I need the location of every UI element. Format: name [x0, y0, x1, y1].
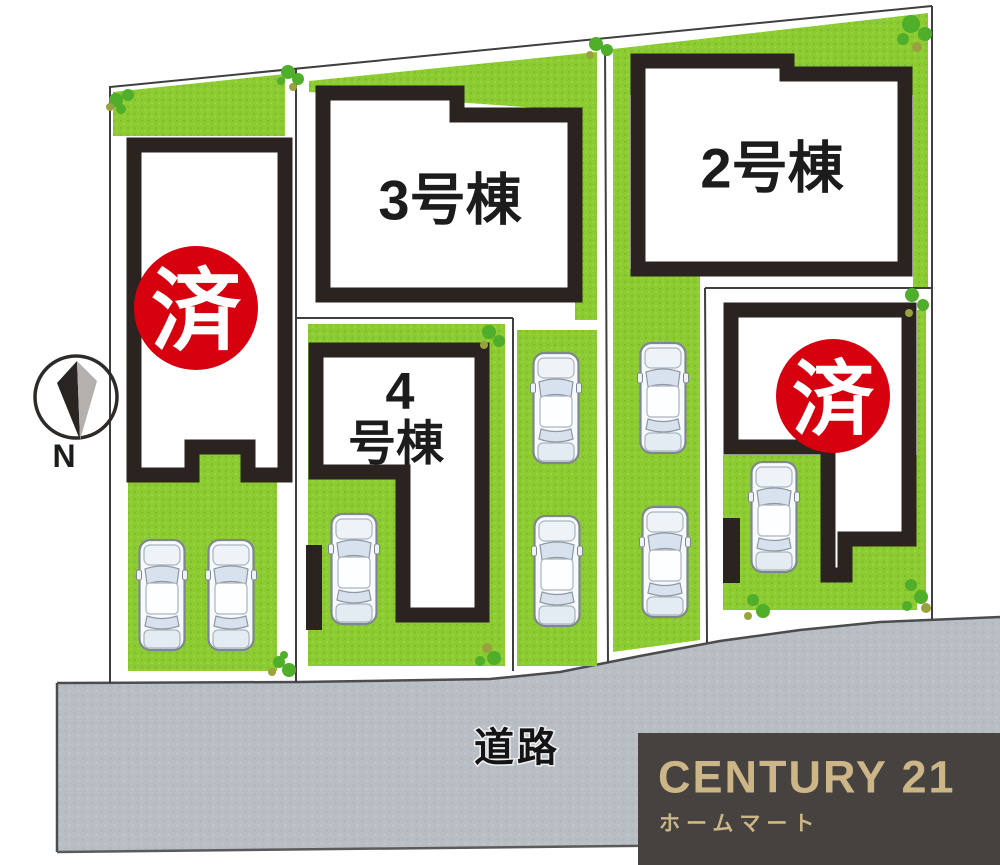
sold-stamp-right: 済 — [776, 339, 890, 453]
building-3-label: 3号棟 — [378, 169, 522, 232]
site-plan-page: 3号棟 2号棟 4 号棟 — [0, 0, 1000, 865]
site-plan-drawing: 3号棟 2号棟 4 号棟 — [0, 0, 1000, 865]
building-4-label-line2: 号棟 — [348, 418, 445, 471]
building-4-label-line1: 4 — [386, 363, 415, 421]
car-icon — [206, 540, 257, 650]
brand-subtitle: ホームマート — [659, 813, 820, 836]
car-icon — [640, 507, 691, 617]
north-label: N — [52, 438, 75, 474]
car-icon — [532, 516, 583, 626]
sold-stamp-right-text: 済 — [792, 355, 875, 446]
car-icon — [531, 353, 582, 463]
brand-logo: CENTURY 21 ホームマート — [638, 733, 1000, 865]
car-icon — [137, 540, 188, 650]
brand-name: CENTURY 21 — [658, 752, 956, 803]
sold-stamp-left-text: 済 — [151, 262, 242, 362]
sold-stamp-left: 済 — [134, 246, 258, 370]
building-2-label: 2号棟 — [700, 137, 844, 200]
car-icon — [638, 343, 689, 453]
road-label: 道路 — [474, 726, 560, 770]
car-icon — [749, 462, 800, 572]
car-icon — [329, 514, 380, 624]
